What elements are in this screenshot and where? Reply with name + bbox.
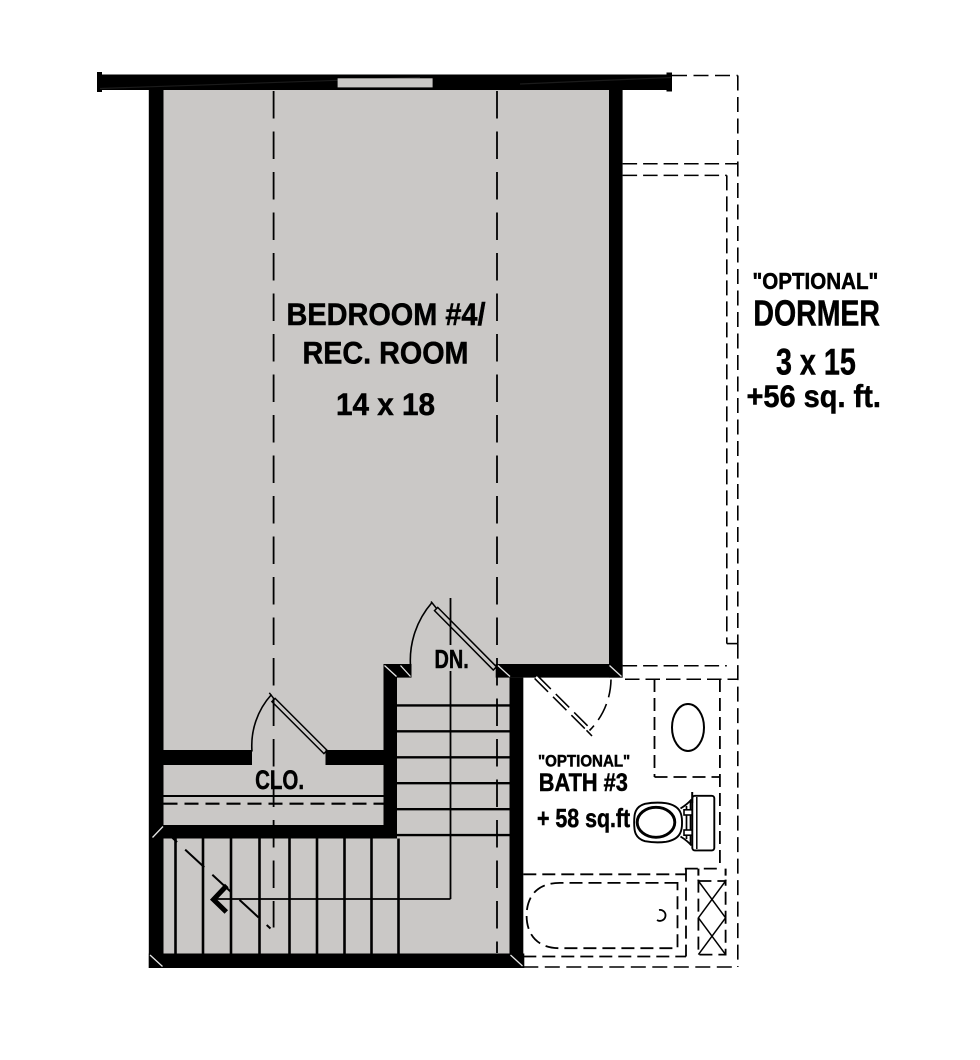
svg-text:DORMER: DORMER (753, 293, 880, 333)
svg-text:14 x 18: 14 x 18 (336, 387, 435, 422)
svg-text:"OPTIONAL": "OPTIONAL" (753, 268, 879, 294)
svg-text:BATH #3: BATH #3 (539, 769, 628, 797)
svg-text:3 x 15: 3 x 15 (776, 341, 856, 382)
svg-text:+ 58 sq.ft: + 58 sq.ft (537, 803, 630, 833)
svg-text:DN.: DN. (435, 644, 469, 674)
svg-text:CLO.: CLO. (255, 765, 304, 795)
svg-text:+56 sq. ft.: +56 sq. ft. (747, 378, 881, 414)
svg-text:BEDROOM #4/: BEDROOM #4/ (287, 297, 486, 332)
svg-text:REC. ROOM: REC. ROOM (303, 336, 469, 371)
svg-text:"OPTIONAL": "OPTIONAL" (538, 752, 630, 771)
